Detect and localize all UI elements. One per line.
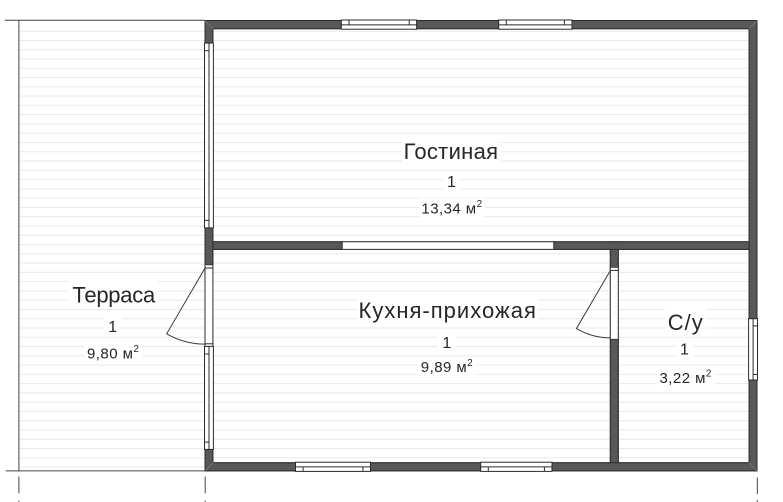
svg-text:1: 1 [442, 335, 451, 352]
svg-text:9,80 м2: 9,80 м2 [87, 344, 139, 362]
svg-text:Кухня-прихожая: Кухня-прихожая [359, 298, 537, 323]
svg-text:1: 1 [108, 319, 117, 336]
svg-text:9,89 м2: 9,89 м2 [421, 358, 473, 376]
svg-text:С/у: С/у [668, 310, 704, 335]
svg-text:1: 1 [680, 342, 689, 359]
svg-text:1: 1 [447, 174, 456, 191]
svg-text:Гостиная: Гостиная [404, 139, 499, 164]
svg-text:13,34 м2: 13,34 м2 [421, 199, 482, 217]
svg-text:3,22 м2: 3,22 м2 [660, 369, 712, 387]
svg-text:Терраса: Терраса [72, 282, 156, 307]
